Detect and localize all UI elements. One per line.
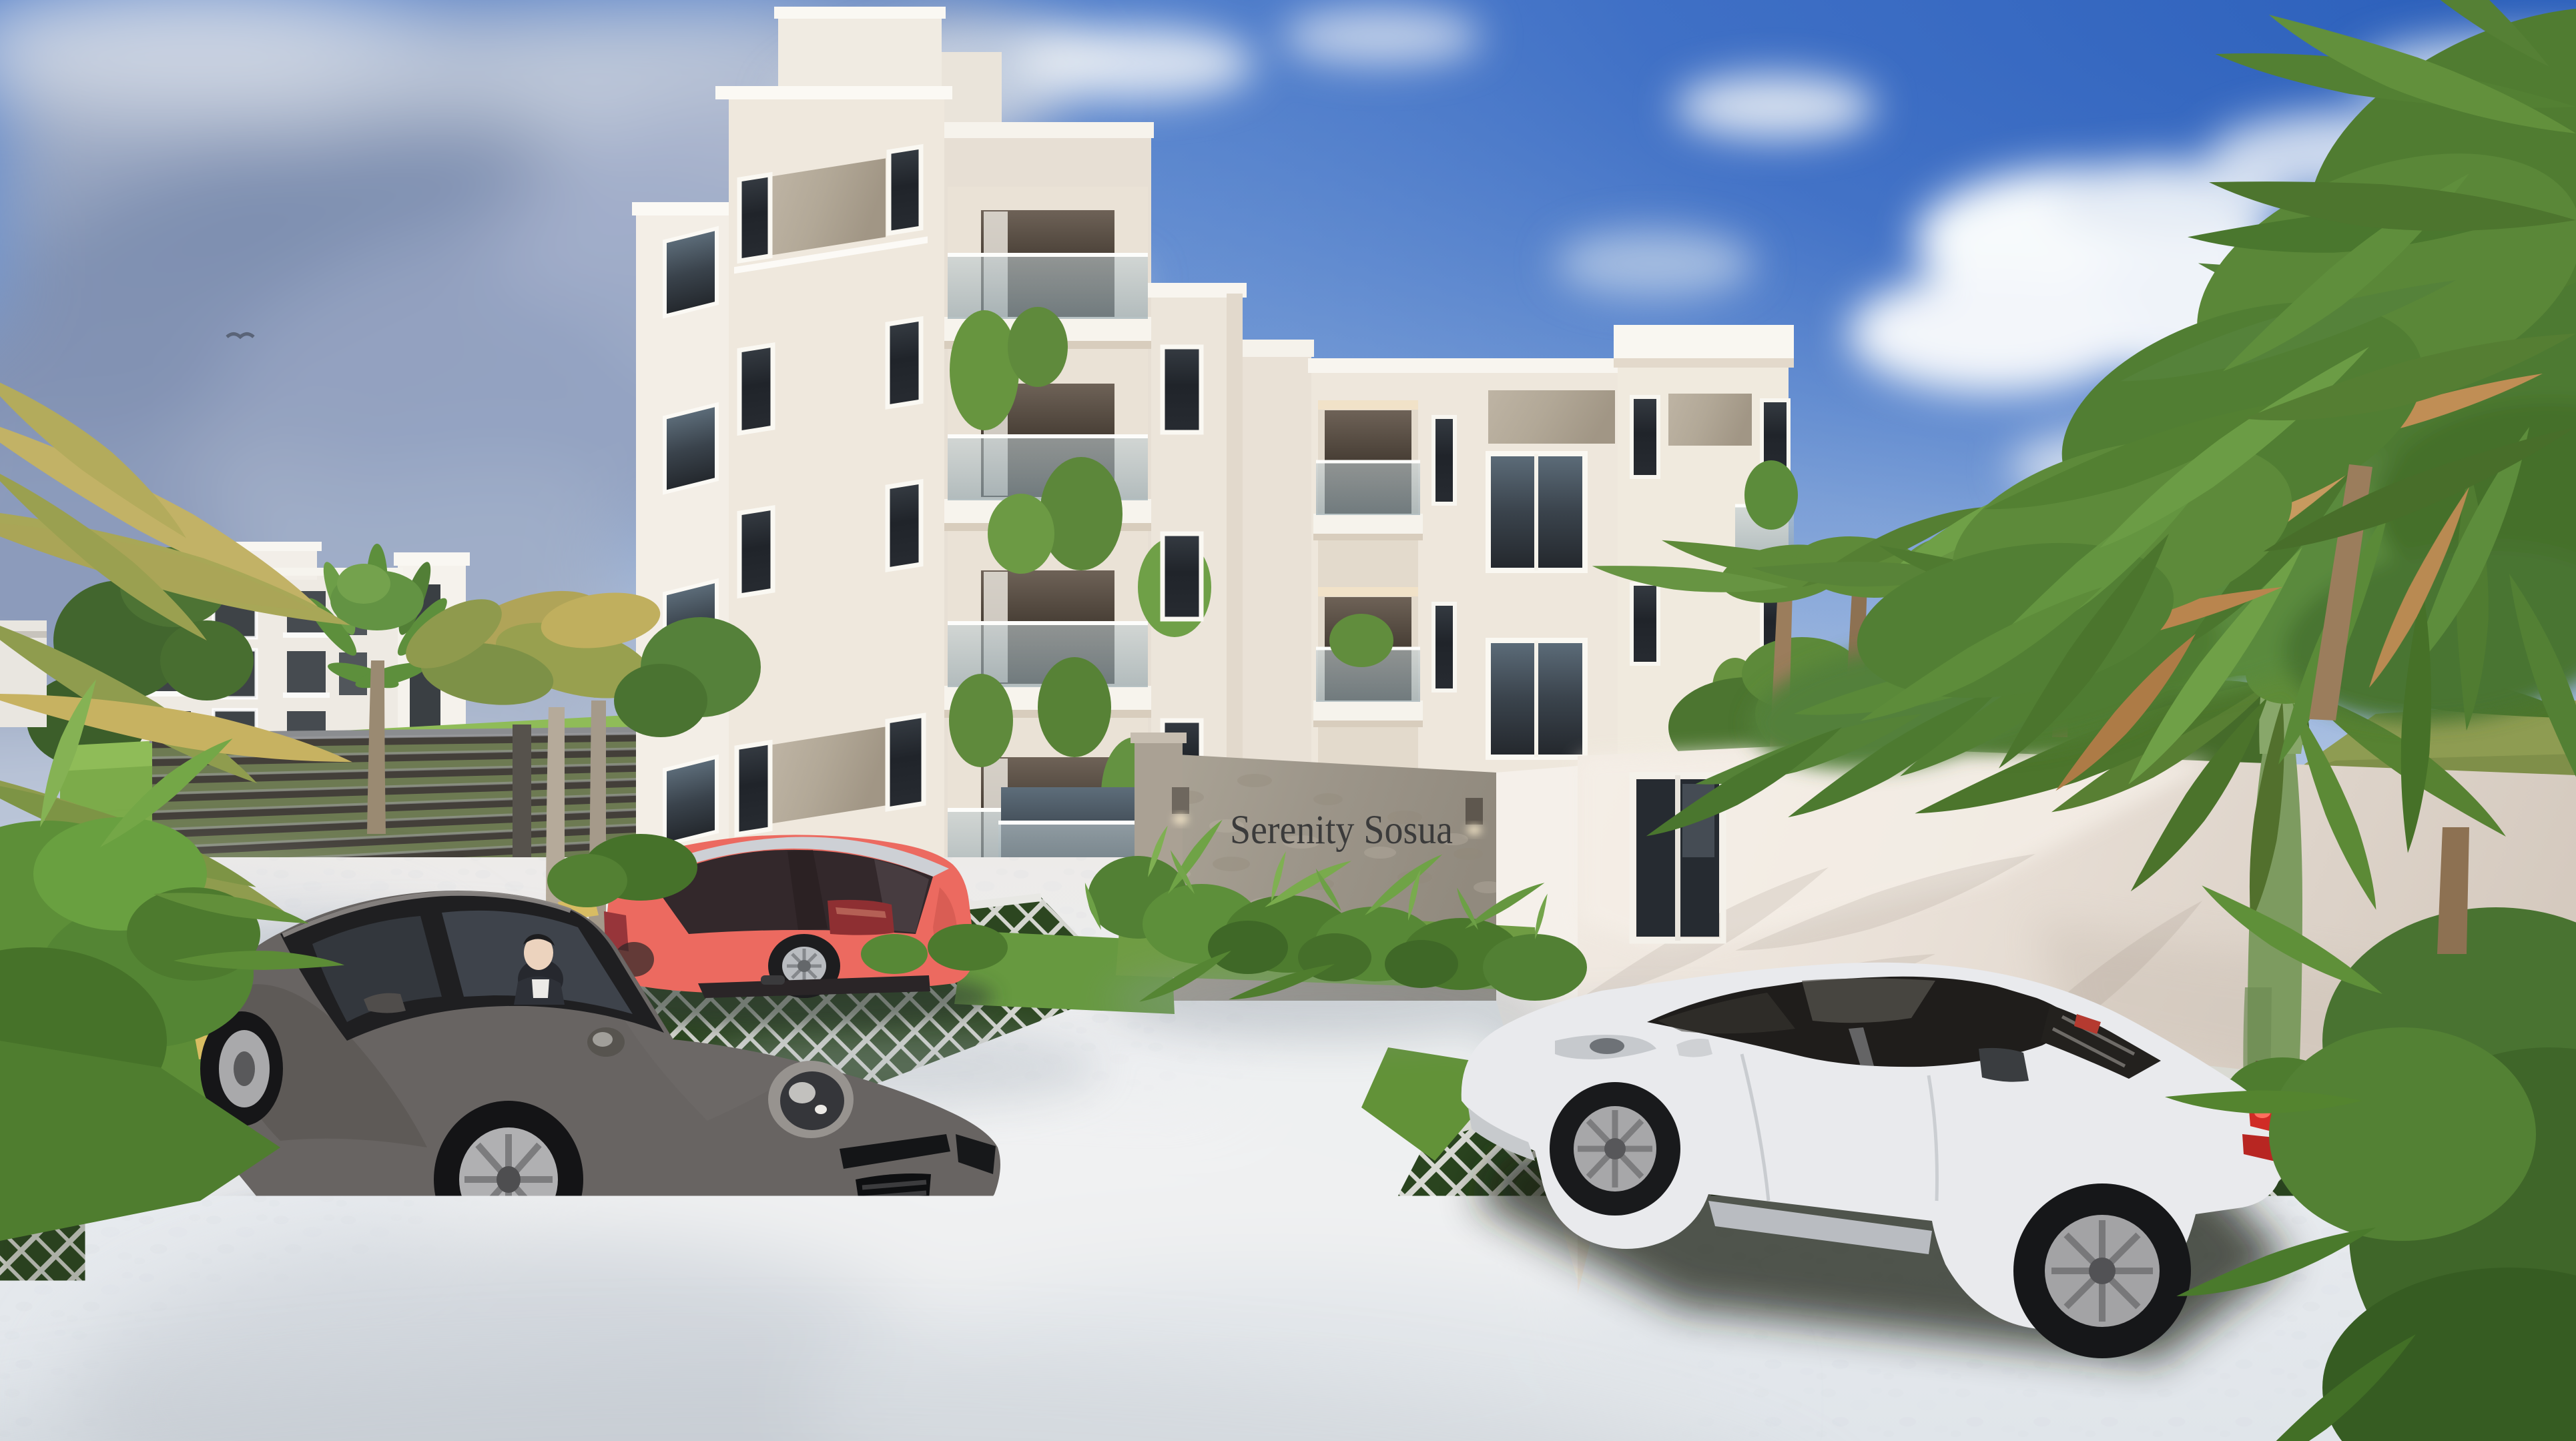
svg-text:Serenity Sosua: Serenity Sosua [1230,808,1453,853]
